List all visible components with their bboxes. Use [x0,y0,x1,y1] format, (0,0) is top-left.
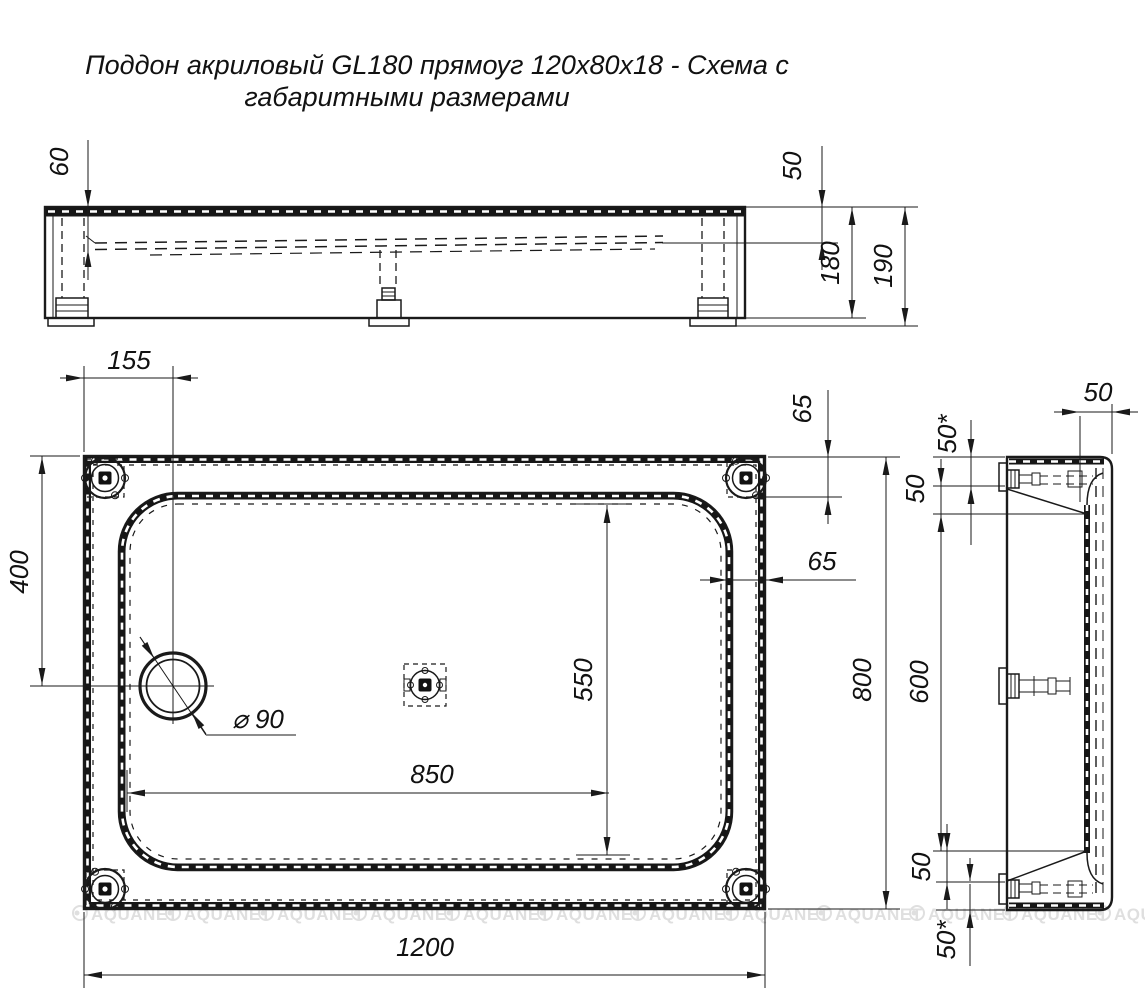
dim-side-offset-bottom-star: 50* [931,920,961,960]
dim-plan-overall-width: 800 [847,658,877,702]
side-bottom-bracket [999,851,1093,904]
drawing-page: AQUANET AQUANET AQUANET AQUANET AQUANET … [0,0,1145,1000]
front-center-leg [369,250,409,326]
dim-side-leg-spacing: 600 [904,660,934,704]
dim-side-offset-bottom: 50 [906,852,936,881]
dim-plan-rim-top: 65 [787,394,817,423]
dim-plan-floor-length: 850 [410,759,454,789]
watermark-text: AQUANET [1114,905,1145,924]
plan-view: ⌀ 90 155 400 65 65 [4,345,900,988]
dim-plan-overall-length: 1200 [396,932,454,962]
dim-plan-drain-offset-x: 155 [107,345,151,375]
technical-drawing: AQUANET AQUANET AQUANET AQUANET AQUANET … [0,0,1145,1000]
side-middle-bracket [999,668,1070,704]
front-right-leg [690,218,736,326]
dim-plan-floor-width: 550 [568,658,598,702]
dim-front-depth-left: 60 [44,147,74,176]
front-left-leg [48,218,94,326]
dim-front-depth-right: 50 [777,151,807,180]
plan-center-fitting [404,664,446,706]
dim-plan-rim-right: 65 [808,546,837,576]
dim-plan-drain-offset-y: 400 [4,550,34,594]
dim-side-rim-width: 50 [1084,377,1113,407]
dim-front-body-height: 180 [815,241,845,285]
side-section-view: 50 50* 50 600 50 50* [900,377,1138,966]
front-elevation-view: 60 50 180 190 [44,140,918,326]
dim-side-offset-top: 50 [900,474,930,503]
dim-front-total-height: 190 [868,244,898,288]
title-line-1: Поддон акриловый GL180 прямоуг 120x80x18… [85,50,789,80]
dim-plan-drain-diameter: ⌀ 90 [232,704,284,734]
side-top-bracket [999,463,1093,514]
dim-side-offset-top-star: 50* [932,414,962,454]
title-line-2: габаритными размерами [244,82,569,112]
drawing-title: Поддон акриловый GL180 прямоуг 120x80x18… [85,50,789,112]
